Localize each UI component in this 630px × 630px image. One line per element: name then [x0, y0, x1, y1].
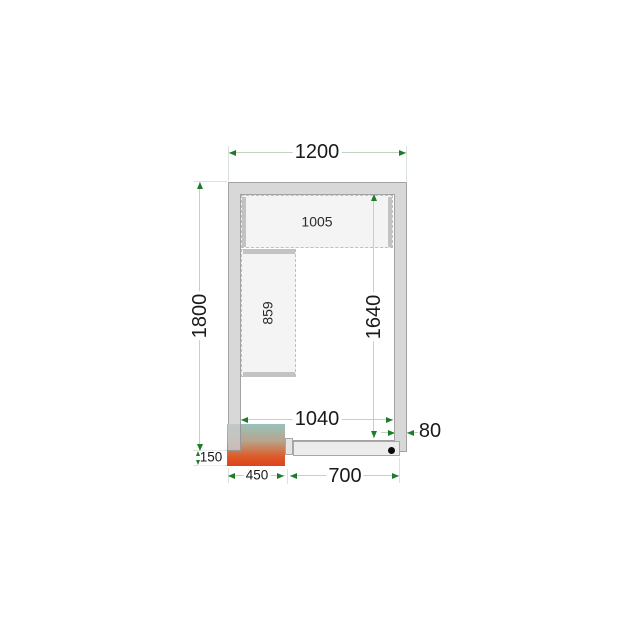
dim-door-section-ext-right: [399, 458, 400, 483]
left-shelf-bracket-bottom: [243, 372, 295, 377]
dim-outer-depth-label: 1800: [189, 292, 211, 341]
dim-inner-depth-arrow-bottom-icon: [371, 431, 377, 438]
floor-plan-canvas: 1200 1800 1640 1040 80 150 450 700 1005 …: [0, 0, 630, 630]
dim-outer-width-arrow-left-icon: [229, 150, 236, 156]
top-shelf-label: 1005: [301, 214, 332, 229]
dim-unit-protrusion-label: 150: [198, 451, 225, 466]
dim-door-section-label: 700: [326, 465, 363, 487]
dim-unit-protrusion-arrow-top-icon: [196, 451, 200, 456]
dim-wall-thickness-label: 80: [419, 420, 441, 442]
dim-unit-width-arrow-right-icon: [277, 473, 284, 479]
dim-wall-thickness-arrow-inner-icon: [388, 430, 395, 436]
dim-inner-width-arrow-left-icon: [241, 417, 248, 423]
dim-unit-width-ext-mid: [287, 469, 288, 484]
dim-unit-width-label: 450: [244, 469, 271, 484]
dim-wall-thickness-arrow-outer-icon: [407, 430, 414, 436]
dim-inner-depth-arrow-top-icon: [371, 194, 377, 201]
wall-over-unit: [228, 424, 241, 451]
top-shelf-bracket-left: [242, 197, 246, 247]
dim-unit-protrusion-arrow-bottom-icon: [196, 460, 200, 465]
dim-outer-width-arrow-right-icon: [399, 150, 406, 156]
dim-outer-width-ext-right: [406, 146, 407, 181]
dim-door-section-arrow-left-icon: [290, 473, 297, 479]
dim-inner-depth-label: 1640: [363, 293, 385, 342]
dim-door-section-arrow-right-icon: [392, 473, 399, 479]
dim-unit-width-arrow-left-icon: [228, 473, 235, 479]
dim-outer-depth-arrow-top-icon: [197, 182, 203, 189]
dim-inner-width-arrow-right-icon: [386, 417, 393, 423]
dim-outer-depth-arrow-bottom-icon: [197, 444, 203, 451]
dim-outer-width-label: 1200: [293, 141, 342, 163]
door-frame-step: [285, 438, 293, 455]
door-hinge-dot: [388, 447, 395, 454]
left-shelf-label: 859: [260, 301, 275, 324]
left-shelf-bracket-top: [243, 249, 295, 254]
door-panel: [293, 441, 400, 456]
dim-inner-width-label: 1040: [293, 408, 342, 430]
top-shelf-bracket-right: [388, 197, 392, 247]
